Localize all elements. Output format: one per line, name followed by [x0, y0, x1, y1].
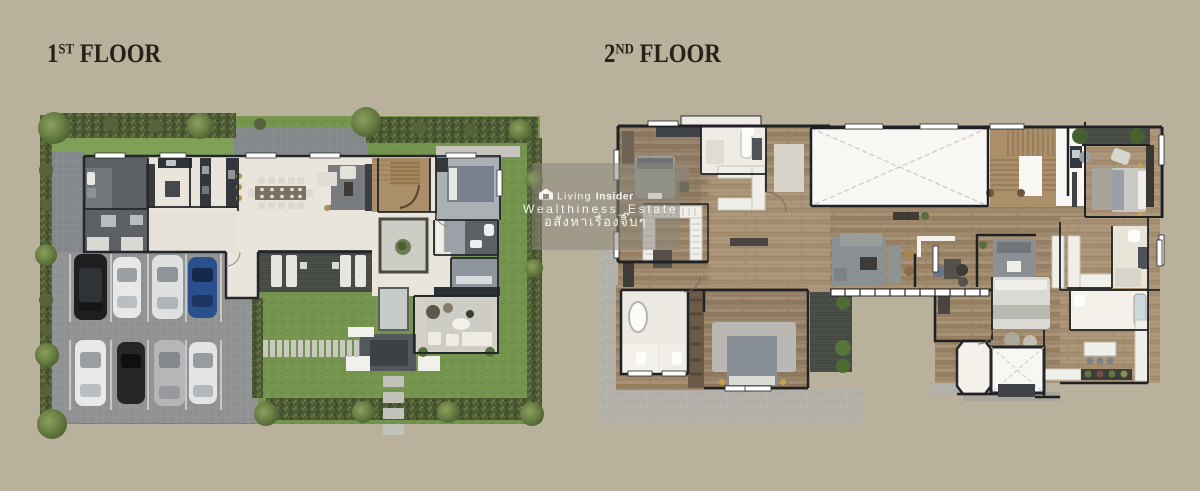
svg-text:Living Insider: Living Insider — [557, 191, 634, 203]
svg-text:อสังหาเรื่องจิ๊บๆ: อสังหาเรื่องจิ๊บๆ — [544, 212, 647, 229]
